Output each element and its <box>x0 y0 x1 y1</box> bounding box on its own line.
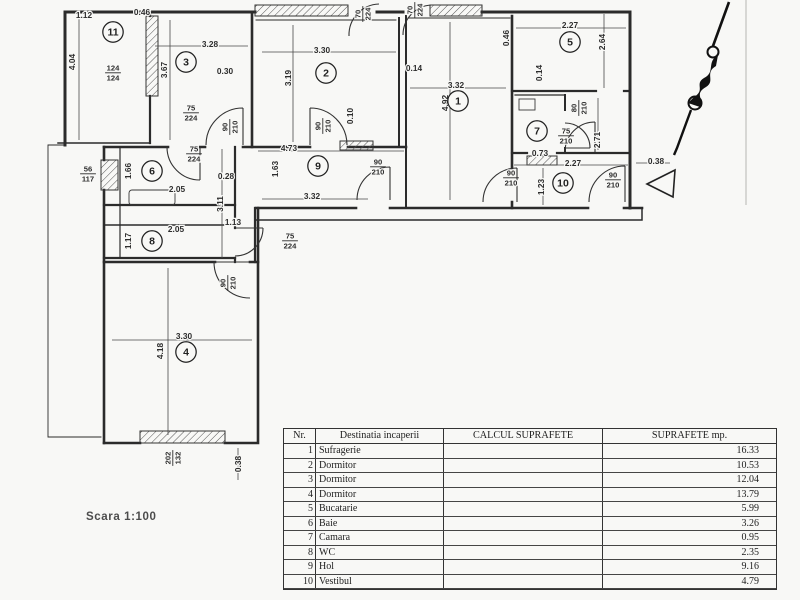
cell-nr: 5 <box>284 502 316 516</box>
svg-text:124: 124 <box>107 64 120 73</box>
cell-room-name: Baie <box>316 517 444 531</box>
dim-label: 3.28 <box>202 39 219 49</box>
cell-nr: 4 <box>284 488 316 502</box>
dim-label: 3.32 <box>448 80 465 90</box>
cell-calc <box>444 517 603 531</box>
dim-label: 1.13 <box>225 217 242 227</box>
door-window-size-label: 80210 <box>570 100 589 116</box>
dim-label: 0.38 <box>233 456 243 473</box>
cell-room-name: Dormitor <box>316 459 444 473</box>
cell-nr: 1 <box>284 444 316 458</box>
svg-text:10: 10 <box>557 178 569 190</box>
door-window-size-label: 75210 <box>558 127 574 146</box>
cell-room-name: Camara <box>316 531 444 545</box>
floor-plan-walls <box>48 12 642 443</box>
room-number-marker: 11 <box>103 22 123 42</box>
svg-text:90: 90 <box>221 123 230 131</box>
entrance-marker-triangle <box>647 170 675 197</box>
dim-label: 2.64 <box>597 34 607 51</box>
col-header-room: Destinatia incaperii <box>316 429 444 443</box>
svg-text:56: 56 <box>84 165 92 174</box>
svg-text:90: 90 <box>507 169 515 178</box>
dim-label: 0.10 <box>345 108 355 125</box>
dim-label: 0.46 <box>134 7 151 17</box>
cell-calc <box>444 531 603 545</box>
dim-label: 1.63 <box>270 161 280 178</box>
svg-text:90: 90 <box>609 171 617 180</box>
dim-label: 3.19 <box>283 70 293 87</box>
cell-calc <box>444 502 603 516</box>
svg-text:210: 210 <box>580 102 589 115</box>
cell-room-name: Dormitor <box>316 473 444 487</box>
dim-label: 1.12 <box>76 10 93 20</box>
svg-text:80: 80 <box>570 104 579 112</box>
svg-text:210: 210 <box>229 277 238 290</box>
table-row: 1Sufragerie16.33 <box>284 444 776 459</box>
col-header-calc: CALCUL SUPRAFETE <box>444 429 603 443</box>
col-header-nr: Nr. <box>284 429 316 443</box>
svg-text:9: 9 <box>315 161 321 173</box>
area-table-body: 1Sufragerie16.332Dormitor10.533Dormitor1… <box>284 444 776 589</box>
dim-label: 3.67 <box>159 62 169 79</box>
room-number-marker: 3 <box>176 52 196 72</box>
cell-calc <box>444 488 603 502</box>
cell-nr: 6 <box>284 517 316 531</box>
svg-text:75: 75 <box>286 232 295 241</box>
cell-area-mp: 4.79 <box>603 575 776 589</box>
cell-area-mp: 10.53 <box>603 459 776 473</box>
door-window-size-label: 124124 <box>105 64 121 83</box>
cell-room-name: Dormitor <box>316 488 444 502</box>
cell-room-name: Hol <box>316 560 444 574</box>
dim-label: 2.27 <box>562 20 579 30</box>
svg-text:117: 117 <box>82 175 94 184</box>
cell-nr: 9 <box>284 560 316 574</box>
svg-text:224: 224 <box>185 114 198 123</box>
svg-text:224: 224 <box>364 7 373 20</box>
dim-label: 0.73 <box>532 148 549 158</box>
table-row: 7Camara0.95 <box>284 531 776 546</box>
area-table-header: Nr. Destinatia incaperii CALCUL SUPRAFET… <box>284 429 776 444</box>
room-number-marker: 10 <box>553 173 573 193</box>
cell-area-mp: 12.04 <box>603 473 776 487</box>
svg-text:70: 70 <box>354 10 363 18</box>
svg-text:210: 210 <box>324 120 333 133</box>
door-window-size-label: 56117 <box>80 165 96 184</box>
svg-text:210: 210 <box>372 168 385 177</box>
svg-text:75: 75 <box>187 104 196 113</box>
north-arrow-icon <box>674 2 729 155</box>
svg-text:224: 224 <box>416 3 425 16</box>
cell-area-mp: 2.35 <box>603 546 776 560</box>
svg-text:90: 90 <box>314 122 323 130</box>
svg-text:210: 210 <box>505 179 518 188</box>
dim-label: 0.14 <box>534 65 544 82</box>
table-row: 6Baie3.26 <box>284 517 776 532</box>
svg-text:70: 70 <box>406 6 415 14</box>
cell-nr: 3 <box>284 473 316 487</box>
table-row: 10Vestibul4.79 <box>284 575 776 590</box>
door-window-size-label: 90210 <box>221 119 240 135</box>
door-window-size-label: 70224 <box>354 6 373 22</box>
dim-label: 0.38 <box>648 156 665 166</box>
table-row: 8WC2.35 <box>284 546 776 561</box>
cell-area-mp: 9.16 <box>603 560 776 574</box>
svg-text:75: 75 <box>562 127 571 136</box>
dim-label: 4.04 <box>67 54 77 71</box>
cell-calc <box>444 444 603 458</box>
cell-room-name: WC <box>316 546 444 560</box>
svg-text:3: 3 <box>183 57 189 69</box>
area-table: Nr. Destinatia incaperii CALCUL SUPRAFET… <box>283 428 777 590</box>
svg-text:202: 202 <box>164 452 173 465</box>
dim-label: 2.71 <box>592 132 602 149</box>
svg-text:210: 210 <box>607 181 620 190</box>
dim-label: 2.05 <box>168 224 185 234</box>
door-window-size-label: 75224 <box>183 104 199 123</box>
dim-label: 1.66 <box>123 163 133 180</box>
svg-text:75: 75 <box>190 145 199 154</box>
cell-calc <box>444 546 603 560</box>
dim-label: 0.46 <box>501 30 511 47</box>
svg-text:90: 90 <box>374 158 382 167</box>
table-row: 4Dormitor13.79 <box>284 488 776 503</box>
cell-calc <box>444 560 603 574</box>
door-window-size-label: 90210 <box>314 118 333 134</box>
svg-text:6: 6 <box>149 166 155 178</box>
door-window-size-label: 90210 <box>370 158 386 177</box>
room-number-marker: 2 <box>316 63 336 83</box>
cell-nr: 10 <box>284 575 316 589</box>
cell-nr: 8 <box>284 546 316 560</box>
table-row: 3Dormitor12.04 <box>284 473 776 488</box>
svg-text:224: 224 <box>284 242 297 251</box>
door-window-size-label: 90210 <box>219 275 238 291</box>
svg-text:4: 4 <box>183 347 189 359</box>
room-number-marker: 8 <box>142 231 162 251</box>
dim-label: 0.14 <box>406 63 423 73</box>
cell-area-mp: 3.26 <box>603 517 776 531</box>
svg-text:11: 11 <box>107 27 118 39</box>
svg-text:210: 210 <box>560 137 573 146</box>
cell-nr: 7 <box>284 531 316 545</box>
svg-text:90: 90 <box>219 279 228 287</box>
scanned-floor-plan-page: 1.120.464.043.280.303.673.303.190.140.10… <box>0 0 800 600</box>
svg-text:8: 8 <box>149 236 155 248</box>
cell-calc <box>444 459 603 473</box>
svg-text:7: 7 <box>534 126 540 138</box>
door-window-size-label: 202132 <box>164 450 183 466</box>
table-row: 5Bucatarie5.99 <box>284 502 776 517</box>
dim-label: 3.30 <box>176 331 193 341</box>
room-number-marker: 5 <box>560 32 580 52</box>
room-number-marker: 1 <box>448 91 468 111</box>
room-number-marker: 4 <box>176 342 196 362</box>
dim-label: 3.11 <box>215 196 225 212</box>
dim-label: 3.32 <box>304 191 321 201</box>
cell-area-mp: 5.99 <box>603 502 776 516</box>
cell-area-mp: 13.79 <box>603 488 776 502</box>
svg-text:224: 224 <box>188 155 201 164</box>
cell-room-name: Bucatarie <box>316 502 444 516</box>
door-window-size-label: 75224 <box>282 232 298 251</box>
cell-area-mp: 0.95 <box>603 531 776 545</box>
cell-area-mp: 16.33 <box>603 444 776 458</box>
col-header-mp: SUPRAFETE mp. <box>603 429 776 443</box>
svg-text:124: 124 <box>107 74 120 83</box>
svg-text:2: 2 <box>323 68 329 80</box>
room-number-marker: 7 <box>527 121 547 141</box>
cell-calc <box>444 473 603 487</box>
table-row: 2Dormitor10.53 <box>284 459 776 474</box>
dim-label: 3.30 <box>314 45 331 55</box>
room-number-marker: 6 <box>142 161 162 181</box>
cell-room-name: Sufragerie <box>316 444 444 458</box>
door-window-size-label: 70224 <box>406 2 425 18</box>
svg-text:5: 5 <box>567 37 573 49</box>
svg-text:1: 1 <box>455 96 461 108</box>
cell-room-name: Vestibul <box>316 575 444 589</box>
cell-nr: 2 <box>284 459 316 473</box>
dim-label: 1.17 <box>123 233 133 250</box>
dimension-lines <box>79 14 670 480</box>
table-row: 9Hol9.16 <box>284 560 776 575</box>
dim-label: 4.73 <box>281 143 298 153</box>
dim-label: 0.28 <box>218 171 235 181</box>
scale-label: Scara 1:100 <box>86 511 157 523</box>
dim-label: 1.23 <box>536 179 546 196</box>
dim-label: 2.05 <box>169 184 186 194</box>
room-number-marker: 9 <box>308 156 328 176</box>
dim-label: 4.18 <box>155 343 165 360</box>
door-window-size-label: 90210 <box>605 171 621 190</box>
svg-text:132: 132 <box>174 452 183 465</box>
dim-label: 2.27 <box>565 158 582 168</box>
cell-calc <box>444 575 603 589</box>
svg-text:210: 210 <box>231 121 240 134</box>
dim-label: 0.30 <box>217 66 234 76</box>
